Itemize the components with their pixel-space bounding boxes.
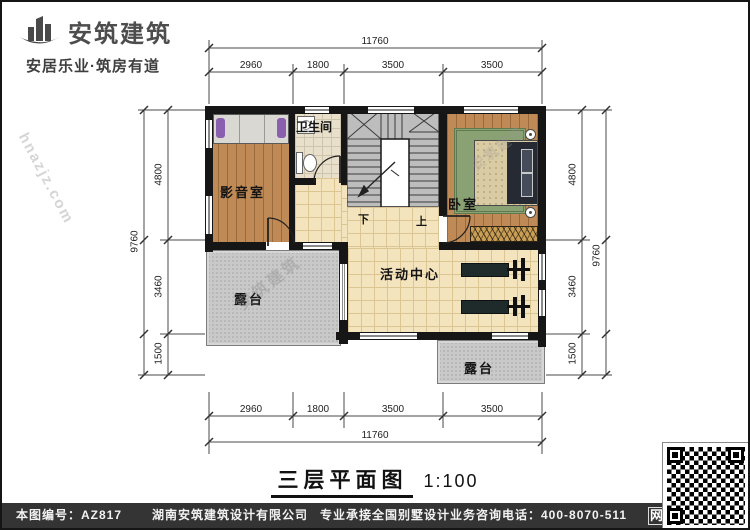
barbell-bar — [507, 305, 530, 308]
dim-left-seg-3: 1500 — [154, 334, 165, 374]
dim-top-seg-2: 1800 — [307, 60, 329, 71]
dim-left-seg-1: 4800 — [154, 155, 165, 195]
barbell-plate — [521, 295, 525, 318]
barbell-bar — [507, 268, 530, 271]
dim-bottom-seg-3: 3500 — [382, 404, 404, 415]
brand-name: 安筑建筑 — [68, 14, 172, 49]
dim-left-seg-2: 3460 — [154, 267, 165, 307]
label-bedroom: 卧室 — [448, 194, 478, 213]
corridor-floor — [295, 178, 341, 250]
footer-service: 专业承接全国别墅设计业务 — [320, 503, 476, 528]
toilet-tank — [296, 152, 303, 174]
watermark-site: hnazjz.com — [15, 130, 77, 227]
dim-top-seg-1: 2960 — [240, 60, 262, 71]
window-hall-south — [360, 332, 417, 340]
barbell-plate — [513, 260, 517, 279]
dim-right-seg-1: 4800 — [568, 155, 579, 195]
activity-center-floor — [348, 248, 538, 332]
pillow — [521, 173, 533, 197]
dim-bottom-seg-4: 3500 — [481, 404, 503, 415]
barbell-plate — [513, 297, 517, 316]
window-media-1 — [205, 120, 213, 148]
dim-left-total: 9760 — [130, 222, 141, 262]
drawing-sheet: 安筑建筑 安居乐业·筑房有道 — [0, 0, 750, 530]
wall-bath-stairs — [341, 106, 347, 185]
footer-drawing-number: 本图编号：AZ817 — [16, 503, 122, 528]
nightstand-lamp — [525, 129, 536, 140]
door-terrace-south — [492, 332, 528, 340]
nightstand-lamp — [525, 207, 536, 218]
label-activity-center: 活动中心 — [380, 264, 440, 283]
label-media-room: 影音室 — [220, 182, 265, 201]
wall-hall-bottom — [336, 332, 360, 340]
bed — [474, 140, 538, 206]
gym-bench — [461, 300, 509, 314]
window-hall-west — [339, 264, 348, 320]
window-bedroom — [464, 106, 518, 114]
wall-stairs-bedroom — [439, 106, 447, 216]
brand-header: 安筑建筑 安居乐业·筑房有道 — [18, 14, 218, 76]
wall-hall-bottom — [417, 332, 492, 340]
plan-scale: 1:100 — [423, 471, 478, 491]
label-stair-down: 下 — [358, 211, 369, 227]
qr-finder — [728, 447, 744, 463]
dim-right-seg-2: 3460 — [568, 267, 579, 307]
window-bath — [305, 106, 329, 114]
sofa — [213, 114, 289, 144]
wall-bedroom-bottom — [439, 242, 546, 250]
staircase-area — [347, 110, 439, 207]
footer-phone: 咨询电话：400-8070-511 — [476, 503, 627, 528]
window-stairs — [368, 106, 414, 114]
wardrobe — [470, 226, 538, 242]
pillow — [521, 149, 533, 173]
dim-bottom-seg-2: 1800 — [307, 404, 329, 415]
window-media-2 — [205, 196, 213, 234]
wall-hall-bottom — [528, 332, 546, 340]
dim-bottom-total: 11760 — [361, 430, 388, 441]
qr-finder — [667, 447, 683, 463]
window-corridor — [303, 242, 332, 250]
dim-right-seg-3: 1500 — [568, 334, 579, 374]
dim-top-seg-3: 3500 — [382, 60, 404, 71]
terrace-left — [206, 250, 341, 346]
dim-bottom-seg-1: 2960 — [240, 404, 262, 415]
label-bathroom: 卫生间 — [296, 118, 332, 135]
qr-code — [662, 442, 748, 528]
plan-title: 三层平面图 — [271, 469, 413, 498]
wall-media-bottom — [205, 242, 266, 250]
label-terrace-bottom: 露台 — [464, 358, 494, 377]
wall-bath-bottom — [289, 178, 316, 185]
brand-tagline: 安居乐业·筑房有道 — [26, 55, 218, 76]
footer-company: 湖南安筑建筑设计有限公司 — [152, 503, 308, 528]
qr-finder — [667, 508, 683, 524]
window-hall-east-2 — [538, 290, 546, 316]
label-terrace-left: 露台 — [234, 289, 264, 308]
footer-bar: 本图编号：AZ817 湖南安筑建筑设计有限公司 专业承接全国别墅设计业务 咨询电… — [2, 503, 748, 528]
dim-right-total: 9760 — [592, 236, 603, 276]
gym-bench — [461, 263, 509, 277]
toilet-bowl — [303, 154, 317, 172]
titleblock: 三层平面图1:100 — [2, 464, 748, 494]
sofa-cushion-left — [216, 118, 225, 138]
sofa-cushion-right — [277, 118, 286, 138]
brand-logo-icon — [18, 15, 64, 49]
window-hall-east-1 — [538, 254, 546, 280]
dim-top-total: 11760 — [361, 36, 388, 47]
dim-top-seg-4: 3500 — [481, 60, 503, 71]
label-stair-up: 上 — [416, 213, 427, 229]
barbell-plate — [521, 258, 525, 281]
